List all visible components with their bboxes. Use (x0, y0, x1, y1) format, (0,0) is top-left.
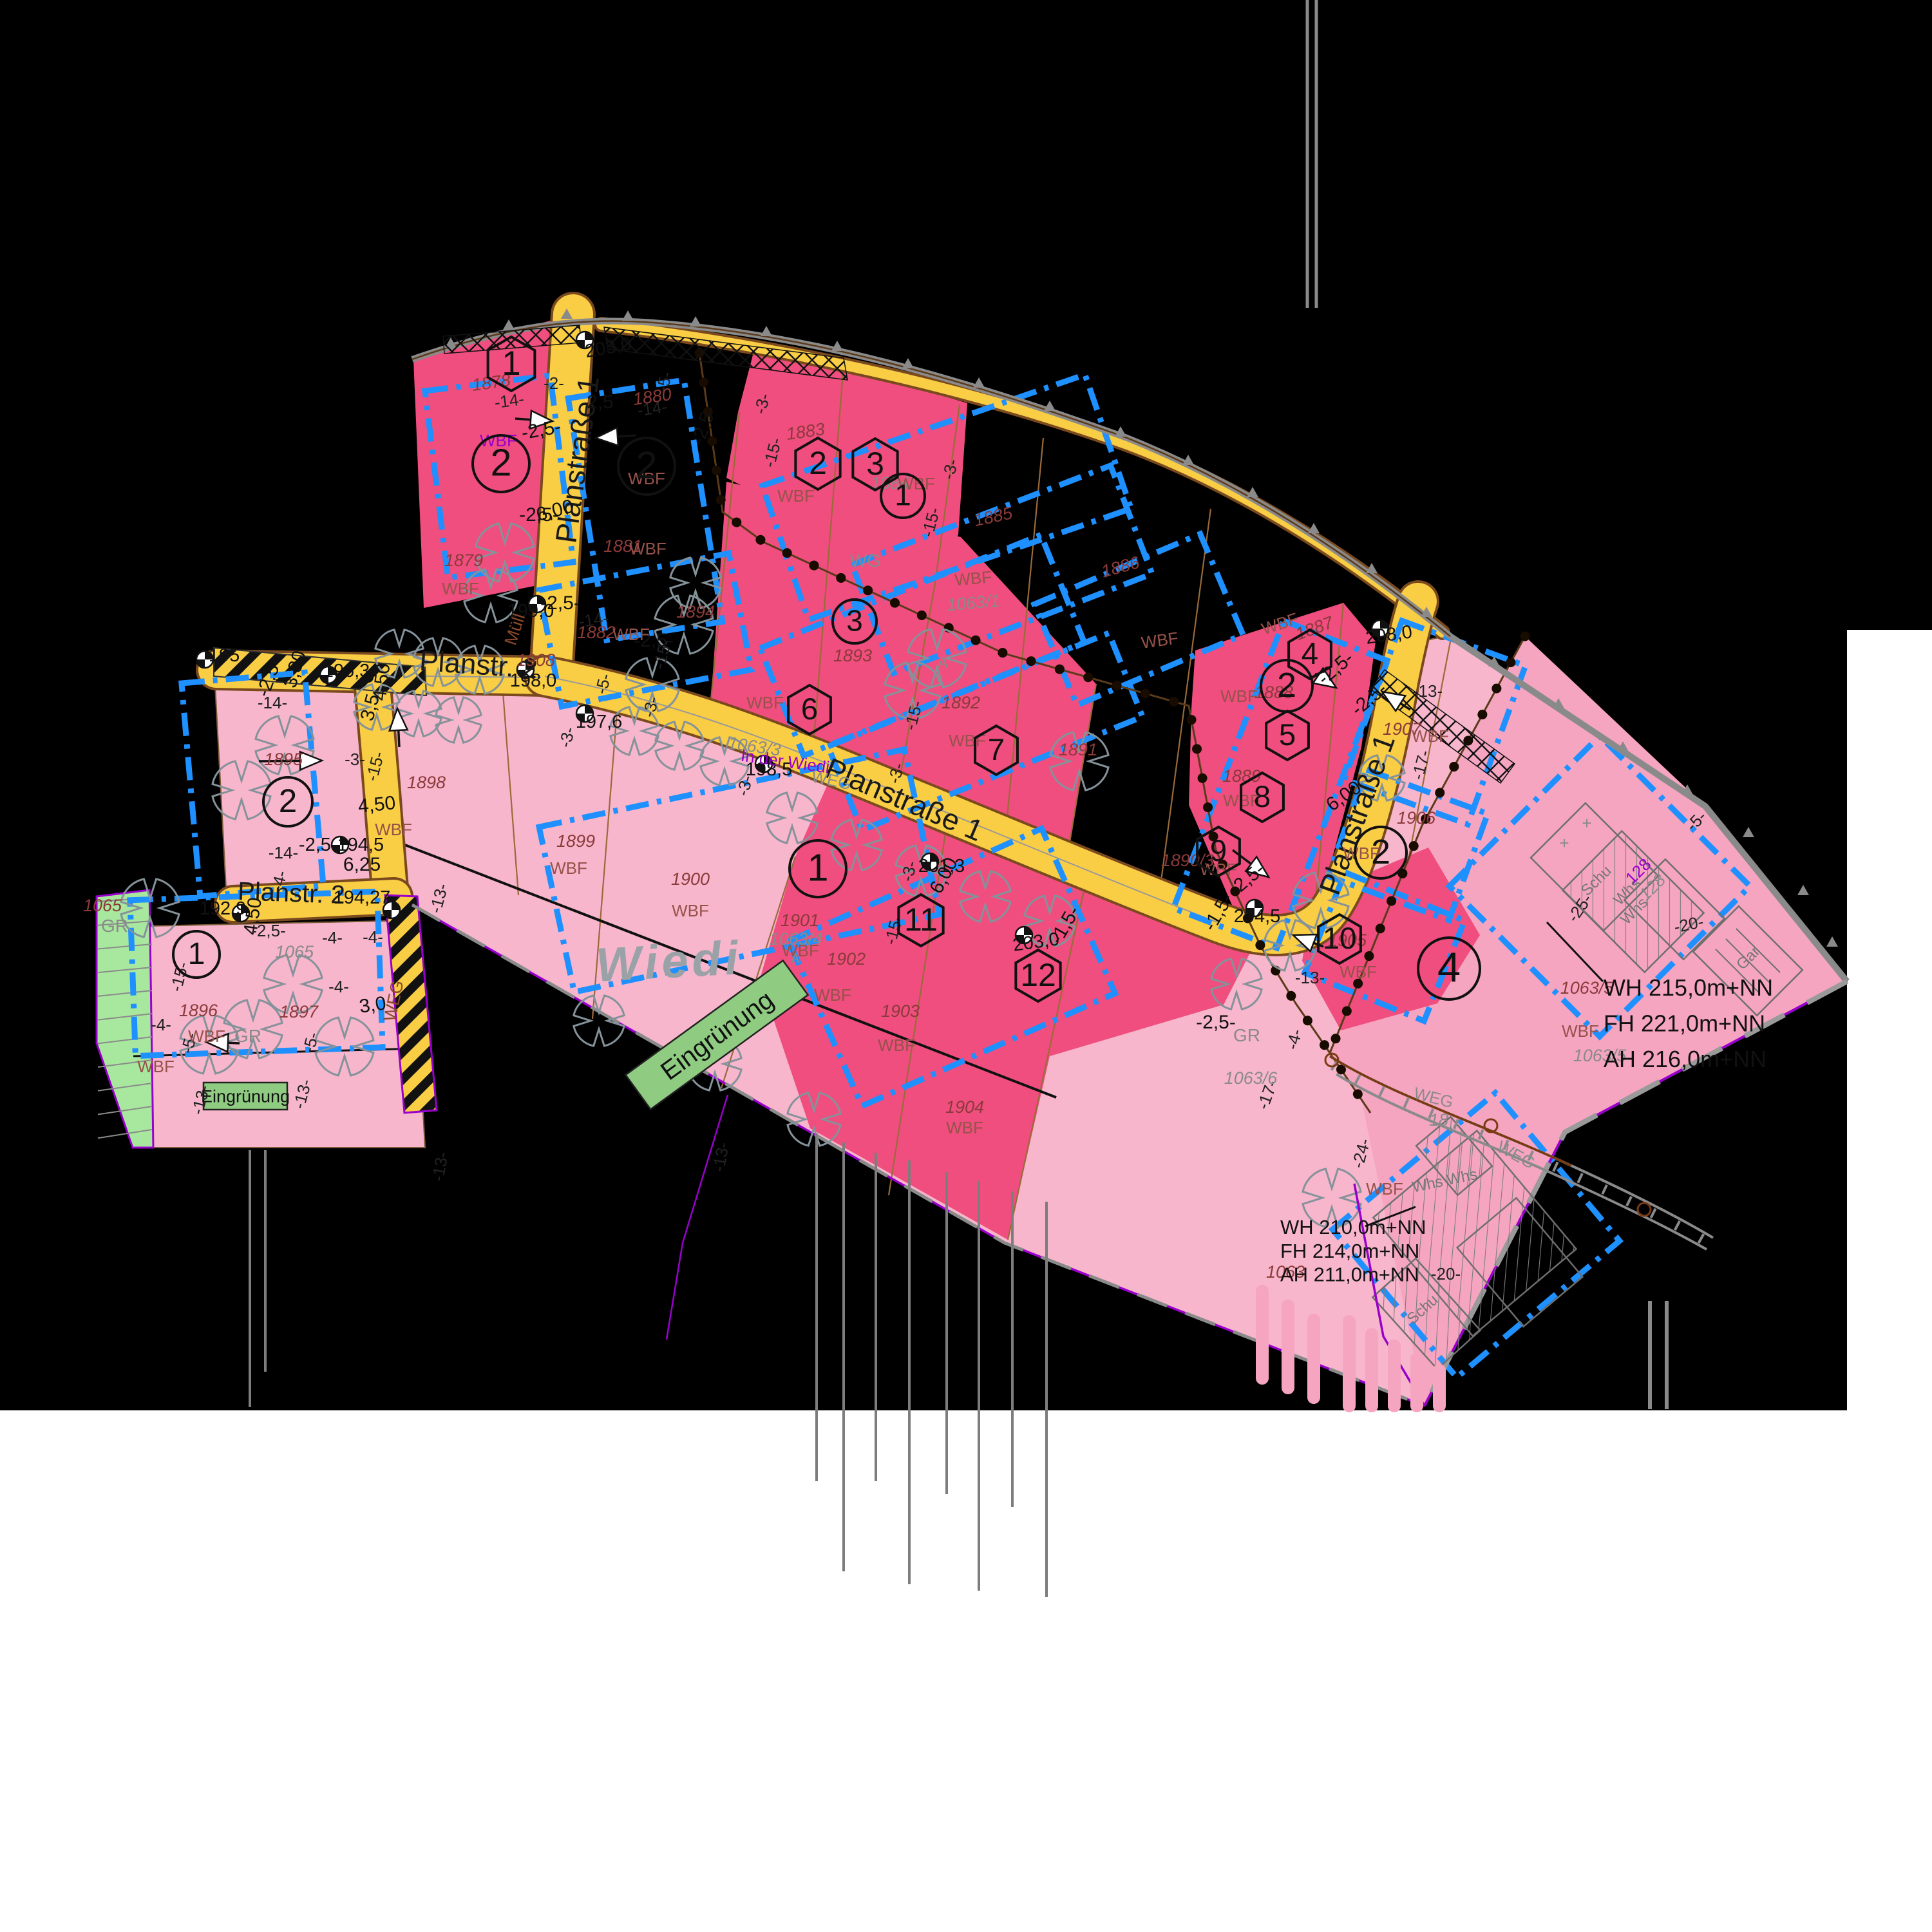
setbacks-label: -4- (328, 977, 349, 996)
misc-gray-label: GR (234, 1026, 261, 1046)
landuse-label: WBF (1562, 1021, 1599, 1041)
surveys-label: 196,3 (323, 661, 370, 681)
svg-text:2: 2 (1277, 666, 1296, 705)
svg-text:9: 9 (1210, 834, 1227, 868)
landuse-label: WBF (782, 941, 819, 960)
parcels-label: 1898 (407, 773, 446, 792)
svg-text:3: 3 (846, 603, 863, 637)
setbacks-label: -2- (544, 374, 564, 393)
setbacks-label: -14- (258, 693, 287, 712)
svg-text:6: 6 (801, 692, 818, 726)
svg-text:2: 2 (1371, 833, 1390, 871)
parcels-label: 1882 (577, 623, 616, 642)
parcels-label: 1895 (264, 750, 303, 769)
dims-label: -2,5- (540, 592, 580, 614)
misc-gray-label: GR (101, 916, 128, 936)
page-canvas: { "map": { "colors": { "background": "#0… (0, 0, 1932, 1932)
landuse-label: WBF (188, 1027, 225, 1046)
landuse-label: WBF (629, 539, 667, 558)
svg-text:4: 4 (1437, 943, 1461, 990)
surveys-label: 197,6 (576, 712, 623, 732)
surveys-label: 198,0 (510, 670, 557, 691)
svg-text:12: 12 (1020, 957, 1056, 993)
elevation-line: FH 221,0m+NN (1604, 1010, 1765, 1037)
parcels-gray-label: 1065 (275, 942, 314, 961)
landuse-label: WBF (1366, 1179, 1403, 1198)
landuse-label: WBF (375, 820, 412, 839)
svg-text:2: 2 (490, 440, 511, 484)
svg-text:5: 5 (1279, 718, 1296, 752)
parcels-label: 1902 (827, 949, 866, 969)
svg-text:4: 4 (1302, 637, 1318, 671)
paper-margin-right (1847, 630, 1932, 1410)
surveys-label: 204,5 (1234, 906, 1281, 927)
surveys-label: -2,5-194,5 (299, 835, 384, 855)
setbacks-label: -4- (151, 1015, 171, 1034)
svg-text:8: 8 (1254, 780, 1271, 814)
svg-text:7: 7 (988, 733, 1005, 767)
paper-margin-bottom (0, 1410, 1932, 1932)
parcels-gray-label: 18 (1429, 1110, 1448, 1130)
elevation-block: WH 215,0m+NNFH 221,0m+NNAH 216,0m+NN (1604, 974, 1773, 1072)
landuse-label: WBF (442, 579, 479, 598)
wiedi-label: Wiedi (594, 931, 743, 992)
setbacks-label: -4- (363, 927, 383, 947)
dims-label: 2,5 (587, 392, 614, 413)
svg-text:10: 10 (1323, 922, 1357, 956)
setbacks-label: -4- (322, 928, 343, 947)
svg-text:2: 2 (809, 445, 827, 481)
landuse-label: WBF (814, 985, 851, 1005)
parcels-label: 1893 (833, 646, 872, 665)
landuse-label: WBF (1412, 726, 1449, 746)
setbacks-label: -14- (493, 389, 526, 412)
eingruenung-label: Eingrünung (201, 1087, 290, 1106)
parcels-label: 1892 (942, 693, 980, 712)
parcels-label: 1065 (83, 896, 122, 915)
elevation-line: AH 211,0m+NN (1280, 1264, 1419, 1286)
eingruenung-box: Eingrünung (201, 1083, 290, 1110)
parcels-label: 1899 (556, 831, 595, 851)
elevation-line: FH 214,0m+NN (1280, 1240, 1419, 1262)
parcels-label: 1900 (671, 869, 710, 889)
svg-text:11: 11 (904, 902, 938, 938)
landuse-label: WBF (1220, 687, 1258, 706)
elevation-line: WH 215,0m+NN (1604, 974, 1773, 1001)
setbacks-label: -2,5- (251, 921, 285, 940)
landuse-label: WBF (954, 567, 992, 590)
surveys-label: 195 (209, 645, 240, 666)
surveys-label: 194,27 (334, 887, 391, 908)
landuse-label: WBF (612, 625, 650, 644)
dims-label: 4,50 (357, 792, 397, 817)
landuse-label: WBF (137, 1057, 175, 1076)
parcels-label: 1894 (676, 602, 715, 621)
surveys-label: 192,9 (200, 898, 247, 919)
landuse-label: WBF (550, 858, 587, 878)
parcels-label: 1903 (881, 1001, 920, 1021)
svg-text:1: 1 (187, 936, 205, 971)
parcels-label: 1904 (945, 1097, 984, 1117)
misc-gray-label: A (938, 654, 948, 672)
svg-text:1: 1 (807, 846, 828, 889)
parcels-label: 1908 (516, 650, 555, 670)
parcels-label: 1896 (179, 1001, 218, 1020)
elevation-line: AH 216,0m+NN (1604, 1046, 1766, 1072)
misc-gray-label: A (791, 952, 800, 966)
misc-gray-label: + (1582, 813, 1591, 833)
parcels-label: 1879 (444, 551, 483, 570)
landuse-label: WBF (878, 1036, 915, 1055)
svg-text:1: 1 (502, 345, 520, 383)
setbacks-label: -13- (1413, 681, 1443, 701)
setbacks-label: -3- (345, 750, 365, 769)
landuse-label: WBF (746, 693, 784, 712)
dims-label: -2,5- (1196, 1012, 1236, 1033)
dims-label: -2,5- (519, 504, 559, 526)
landuse-label: WBF (1340, 962, 1377, 981)
elevation-line: WH 210,0m+NN (1280, 1216, 1426, 1238)
setbacks-label: -20- (1431, 1264, 1461, 1283)
landuse-label: WBF (672, 901, 709, 920)
parcels-gray-label: 1063/6 (1224, 1068, 1278, 1088)
svg-text:2: 2 (636, 443, 657, 486)
svg-text:1: 1 (895, 478, 911, 511)
misc-gray-label: WG (850, 551, 881, 571)
svg-text:2: 2 (279, 782, 298, 819)
dims-label: 6,25 (343, 854, 381, 875)
parcels-label: 1906 (1397, 808, 1436, 828)
misc-gray-label: + (1559, 833, 1569, 853)
misc-gray-label: GR (1233, 1025, 1260, 1045)
landuse-label: WBF (946, 1118, 983, 1137)
parcels-label: 1891 (1059, 740, 1097, 759)
setbacks-label: -14- (269, 843, 298, 862)
landuse-label: WBF (777, 486, 815, 506)
svg-text:3: 3 (866, 446, 884, 482)
setbacks-label: -13- (1295, 968, 1325, 987)
elevation-block: WH 210,0m+NNFH 214,0m+NNAH 211,0m+NN (1280, 1216, 1426, 1286)
parcels-label: 1901 (781, 911, 819, 930)
parcels-label: 1897 (279, 1002, 319, 1021)
bebauungsplan-map: EingrünungEingrünungPlanstraße 1Planstra… (0, 0, 1932, 1932)
